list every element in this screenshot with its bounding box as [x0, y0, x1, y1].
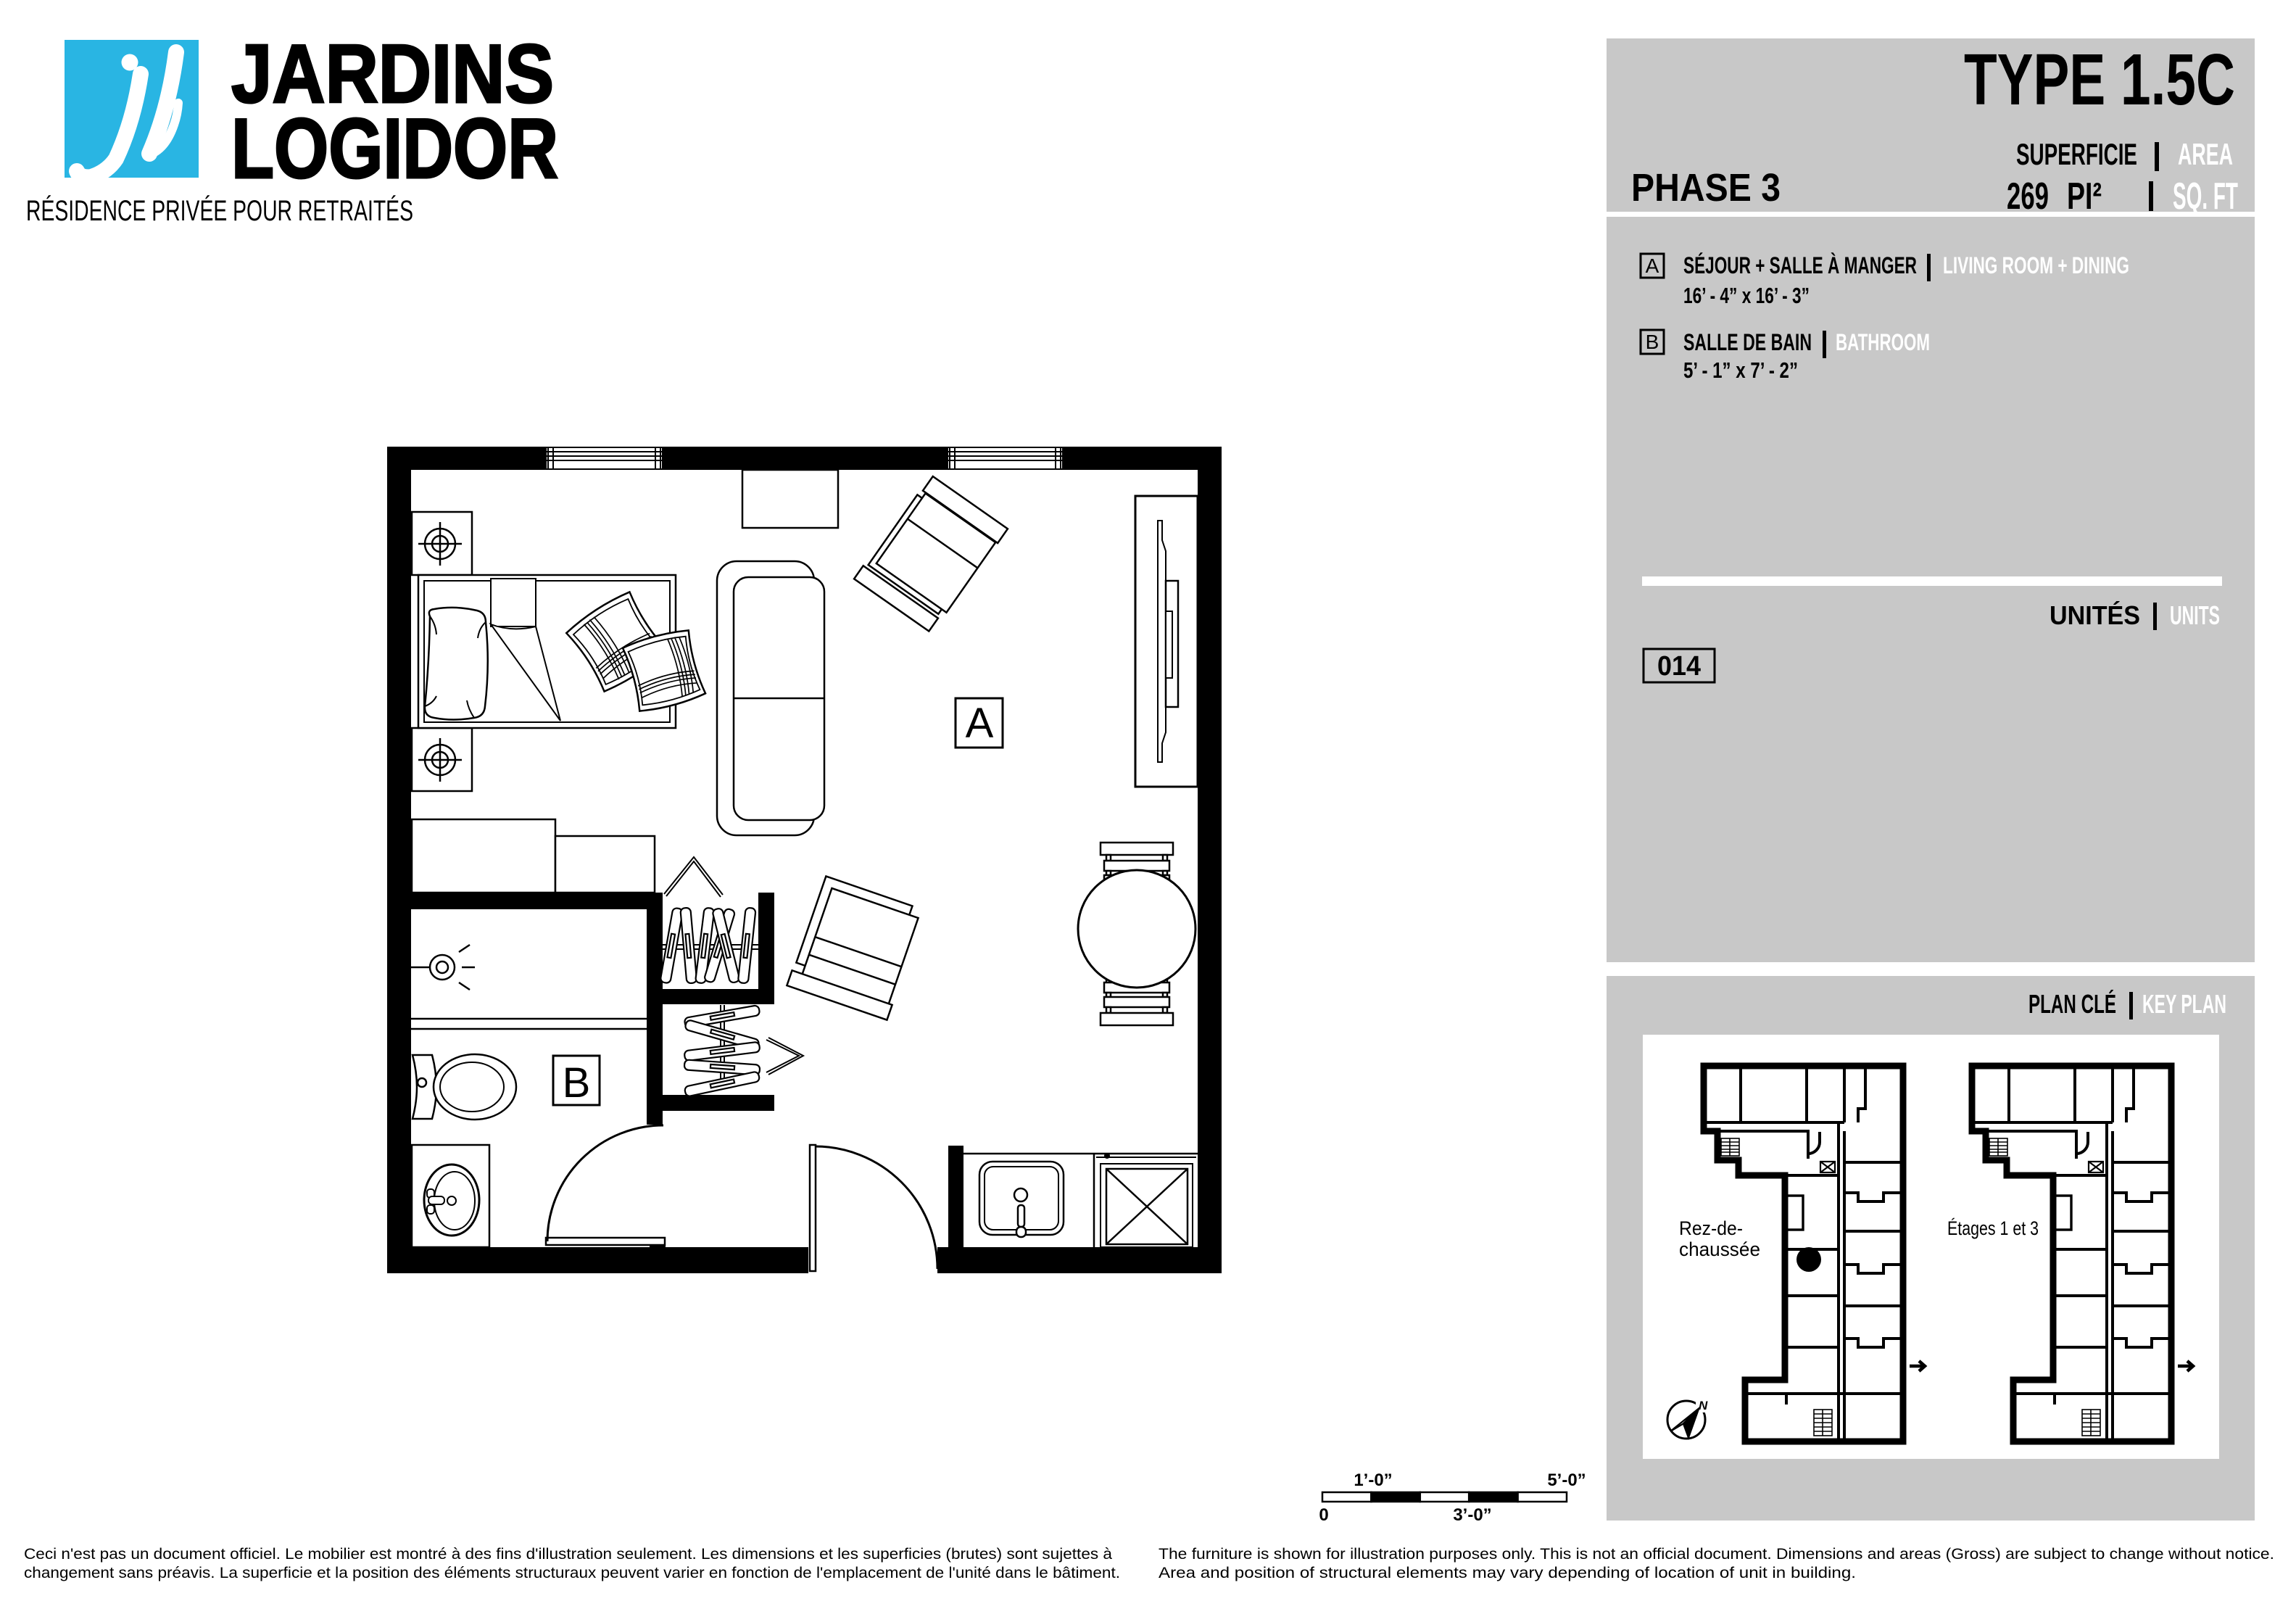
svg-text:BATHROOM: BATHROOM [1836, 329, 1930, 355]
svg-text:AREA: AREA [2178, 137, 2233, 171]
svg-text:N: N [1699, 1399, 1708, 1412]
svg-text:SALLE DE BAIN: SALLE DE BAIN [1683, 329, 1812, 355]
svg-text:The furniture is shown for ill: The furniture is shown for illustration … [1159, 1545, 2274, 1563]
svg-text:Ceci n'est pas un document off: Ceci n'est pas un document officiel. Le … [24, 1545, 1112, 1563]
svg-text:SQ. FT: SQ. FT [2173, 175, 2238, 218]
svg-text:LOGIDOR: LOGIDOR [231, 101, 558, 196]
svg-text:KEY PLAN: KEY PLAN [2142, 989, 2226, 1019]
svg-text:3’-0”: 3’-0” [1453, 1505, 1491, 1525]
svg-text:A: A [1646, 255, 1659, 277]
svg-text:269: 269 [2007, 175, 2049, 218]
svg-text:014: 014 [1657, 651, 1701, 682]
svg-text:1’-0”: 1’-0” [1354, 1470, 1392, 1490]
svg-text:chaussée: chaussée [1679, 1238, 1760, 1260]
svg-text:PHASE 3: PHASE 3 [1631, 166, 1781, 210]
svg-text:LIVING ROOM + DINING: LIVING ROOM + DINING [1943, 252, 2129, 278]
svg-text:Étages 1 et 3: Étages 1 et 3 [1947, 1217, 2039, 1239]
svg-text:UNITÉS: UNITÉS [2050, 600, 2140, 630]
svg-text:5’ - 1” x 7’ - 2”: 5’ - 1” x 7’ - 2” [1683, 357, 1798, 383]
svg-text:16’ - 4” x 16’ - 3”: 16’ - 4” x 16’ - 3” [1683, 283, 1810, 308]
svg-text:changement sans préavis. La su: changement sans préavis. La superficie e… [24, 1564, 1120, 1581]
svg-text:RÉSIDENCE PRIVÉE POUR RETRAITÉ: RÉSIDENCE PRIVÉE POUR RETRAITÉS [26, 194, 413, 227]
svg-text:B: B [563, 1059, 591, 1106]
svg-text:UNITS: UNITS [2170, 600, 2220, 630]
svg-text:SUPERFICIE: SUPERFICIE [2016, 137, 2137, 171]
svg-text:PI²: PI² [2067, 175, 2102, 218]
svg-text:Area and position of structura: Area and position of structural elements… [1159, 1564, 1856, 1581]
svg-text:5’-0”: 5’-0” [1547, 1470, 1586, 1490]
svg-text:PLAN CLÉ: PLAN CLÉ [2028, 989, 2116, 1019]
svg-text:TYPE 1.5C: TYPE 1.5C [1964, 39, 2235, 120]
svg-text:0: 0 [1319, 1505, 1328, 1525]
svg-text:Rez-de-: Rez-de- [1679, 1217, 1743, 1239]
svg-text:A: A [966, 700, 994, 747]
svg-text:B: B [1646, 331, 1659, 353]
svg-text:SÉJOUR + SALLE À MANGER: SÉJOUR + SALLE À MANGER [1683, 252, 1917, 278]
